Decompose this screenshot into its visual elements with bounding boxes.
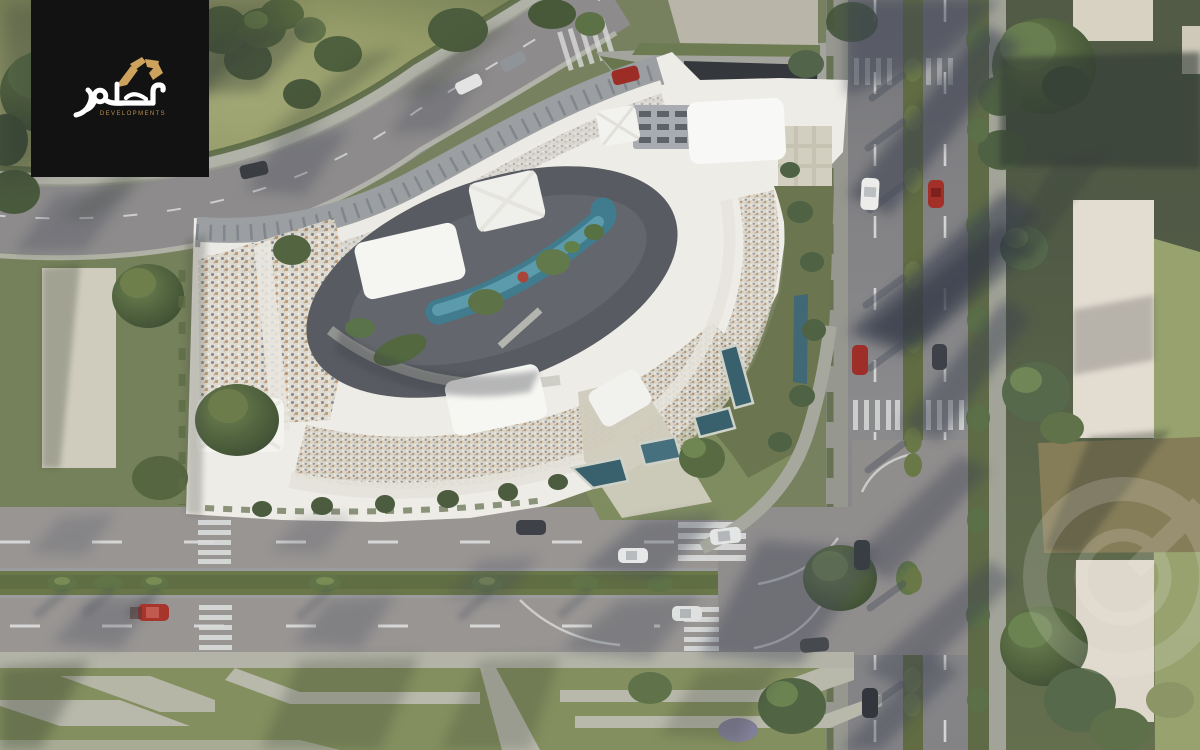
svg-text:DEVELOPMENTS: DEVELOPMENTS (100, 111, 166, 117)
